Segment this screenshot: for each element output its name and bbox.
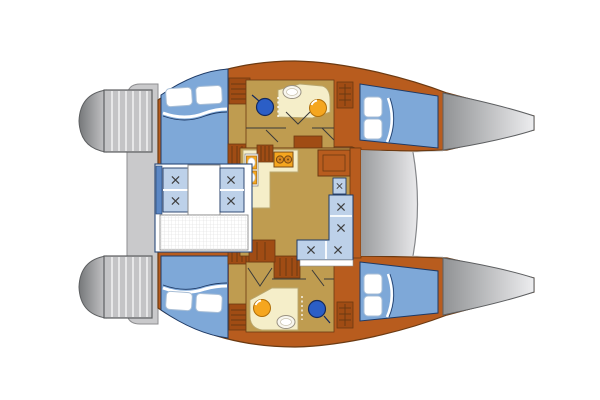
- aft-cabin-port: [161, 69, 228, 164]
- forward-cabin-starboard: [360, 262, 438, 321]
- cockpit-side-locker: [156, 166, 162, 214]
- washbasin-round-icon: [310, 100, 327, 117]
- companionway-steps: [337, 302, 353, 328]
- pillow-icon: [364, 274, 382, 294]
- pillow-icon: [165, 87, 192, 107]
- companionway-steps: [337, 82, 353, 108]
- saloon: [240, 145, 361, 266]
- nav-seat: [333, 178, 346, 194]
- companionway-steps: [274, 256, 300, 278]
- bathroom-starboard: [246, 256, 334, 332]
- nav-cabinet: [318, 150, 350, 176]
- cockpit-sunpad-grid: [160, 215, 248, 250]
- cockpit: [155, 164, 252, 252]
- cockpit-bench-port: [163, 168, 188, 212]
- floor-plan-canvas: [0, 0, 600, 400]
- pillow-icon: [364, 296, 382, 316]
- cockpit-table: [188, 165, 220, 215]
- pillow-icon: [196, 85, 223, 104]
- bow-port: [443, 93, 534, 150]
- cabinet: [294, 136, 322, 148]
- pillow-icon: [364, 97, 382, 117]
- washbasin-round-icon: [254, 300, 271, 317]
- aft-cabin-starboard: [161, 256, 228, 338]
- bow-starboard: [443, 258, 534, 315]
- galley-steps: [257, 145, 273, 162]
- pillow-icon: [165, 291, 192, 311]
- bathroom-port: [246, 80, 334, 148]
- washbasin-oval-icon: [277, 316, 295, 329]
- transom-steps-starboard: [79, 256, 152, 318]
- pillow-icon: [364, 119, 382, 139]
- cockpit-bench-starboard: [220, 168, 244, 212]
- washbasin-oval-icon: [283, 86, 301, 99]
- foredeck: [361, 150, 418, 256]
- saloon-entry-steps: [249, 240, 275, 262]
- galley-stove-icon: [274, 152, 293, 167]
- settee-back: [300, 260, 353, 266]
- transom-steps-port: [79, 90, 152, 152]
- pillow-icon: [196, 293, 223, 312]
- catamaran-plan-svg: [0, 0, 600, 400]
